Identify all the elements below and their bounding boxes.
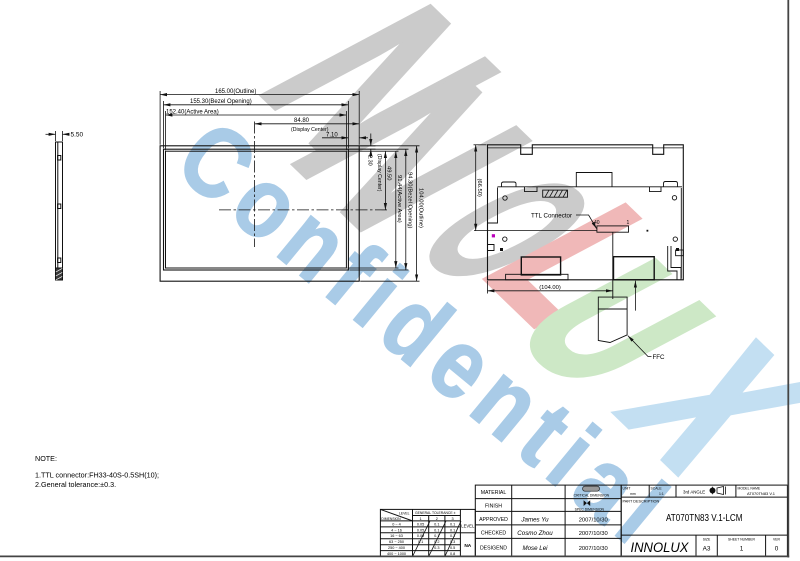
svg-text:165.00(Outline): 165.00(Outline) bbox=[215, 89, 256, 95]
svg-text:0.1: 0.1 bbox=[434, 534, 439, 538]
svg-text:0.05: 0.05 bbox=[417, 522, 424, 526]
svg-text:0.1: 0.1 bbox=[434, 528, 439, 532]
svg-text:TTL Connector: TTL Connector bbox=[531, 213, 572, 220]
svg-text:INNOLUX: INNOLUX bbox=[631, 540, 690, 555]
svg-text:LEVEL: LEVEL bbox=[461, 524, 475, 529]
svg-text:250 ~ 400: 250 ~ 400 bbox=[388, 546, 405, 550]
svg-text:PART DESCRIPTION: PART DESCRIPTION bbox=[623, 500, 660, 504]
svg-text:400 ~ 1000: 400 ~ 1000 bbox=[387, 552, 406, 556]
svg-text:(66.50): (66.50) bbox=[476, 179, 482, 197]
svg-text:NA: NA bbox=[464, 543, 471, 549]
svg-text:GENERAL TOLERANCE ±: GENERAL TOLERANCE ± bbox=[415, 511, 456, 515]
svg-text:A3: A3 bbox=[703, 545, 711, 552]
svg-text:0: 0 bbox=[775, 545, 779, 552]
svg-text:FINISH: FINISH bbox=[485, 504, 502, 510]
svg-text:NOTE:: NOTE: bbox=[35, 454, 57, 463]
svg-text:1:1: 1:1 bbox=[659, 492, 664, 496]
svg-text:0.1: 0.1 bbox=[418, 540, 423, 544]
svg-text:VER: VER bbox=[773, 537, 781, 541]
svg-text:49.50: 49.50 bbox=[386, 166, 392, 181]
svg-text:AT070TN83 V.1-LCM: AT070TN83 V.1-LCM bbox=[666, 512, 743, 524]
svg-text:(Display Center): (Display Center) bbox=[291, 127, 329, 133]
svg-text:SIZE: SIZE bbox=[703, 537, 711, 541]
svg-text:0.1: 0.1 bbox=[450, 534, 455, 538]
svg-text:(Display Center): (Display Center) bbox=[376, 154, 382, 192]
svg-text:0.1: 0.1 bbox=[434, 522, 439, 526]
svg-text:James Yu: James Yu bbox=[520, 517, 549, 524]
svg-text:2007/10/30: 2007/10/30 bbox=[579, 546, 608, 552]
svg-text:1: 1 bbox=[740, 545, 744, 552]
svg-text:91.44(Active Area): 91.44(Active Area) bbox=[396, 175, 402, 223]
svg-text:(104.00): (104.00) bbox=[539, 285, 561, 291]
svg-text:SPEC DIMENSION: SPEC DIMENSION bbox=[575, 507, 605, 511]
svg-text:0.05: 0.05 bbox=[417, 528, 424, 532]
svg-text:2.General tolerance:±0.3.: 2.General tolerance:±0.3. bbox=[35, 480, 116, 489]
svg-text:CHECKED: CHECKED bbox=[481, 530, 507, 536]
svg-text:84.80: 84.80 bbox=[294, 118, 310, 124]
svg-text:16 ~ 63: 16 ~ 63 bbox=[390, 534, 403, 538]
svg-text:152.40(Active Area): 152.40(Active Area) bbox=[166, 109, 219, 115]
svg-text:4 ~ 16: 4 ~ 16 bbox=[391, 528, 402, 532]
svg-text:APPROVED: APPROVED bbox=[479, 517, 508, 523]
svg-text:AT070TN83 V.1: AT070TN83 V.1 bbox=[747, 491, 776, 496]
svg-text:DIMENSION: DIMENSION bbox=[381, 517, 401, 521]
svg-text:UNIT: UNIT bbox=[623, 486, 631, 490]
svg-text:MATERIAL: MATERIAL bbox=[481, 490, 507, 496]
svg-text:CRITICAL DIMENSION: CRITICAL DIMENSION bbox=[574, 494, 610, 498]
svg-text:DESIGEND: DESIGEND bbox=[480, 546, 507, 552]
svg-text:Cosmo Zhou: Cosmo Zhou bbox=[517, 530, 553, 537]
svg-text:0.1: 0.1 bbox=[450, 528, 455, 532]
svg-text:mm: mm bbox=[630, 492, 636, 496]
svg-text:3: 3 bbox=[452, 517, 454, 521]
svg-text:0.5: 0.5 bbox=[450, 546, 455, 550]
svg-text:0.8: 0.8 bbox=[450, 552, 455, 556]
svg-text:3rd ANGLE: 3rd ANGLE bbox=[683, 490, 705, 495]
svg-text:0.2: 0.2 bbox=[434, 540, 439, 544]
svg-text:MODEL NAME: MODEL NAME bbox=[738, 486, 761, 490]
svg-text:0 ~ 4: 0 ~ 4 bbox=[392, 522, 401, 526]
svg-text:94.30(Bezel Opening): 94.30(Bezel Opening) bbox=[407, 172, 413, 228]
svg-text:2.30: 2.30 bbox=[366, 155, 372, 166]
svg-text:0.3: 0.3 bbox=[450, 540, 455, 544]
svg-text:0.3: 0.3 bbox=[434, 546, 439, 550]
svg-text:1.TTL connector:FH33-40S-0.5SH: 1.TTL connector:FH33-40S-0.5SH(10); bbox=[35, 471, 159, 480]
svg-text:Mose Lei: Mose Lei bbox=[522, 545, 548, 552]
svg-text:0.09: 0.09 bbox=[417, 534, 424, 538]
svg-text:1: 1 bbox=[627, 220, 630, 226]
svg-text:2007/10/30: 2007/10/30 bbox=[579, 517, 608, 523]
svg-text:5.50: 5.50 bbox=[71, 132, 84, 139]
svg-text:0.1: 0.1 bbox=[450, 522, 455, 526]
svg-text:7.10: 7.10 bbox=[326, 132, 338, 138]
svg-text:LEVEL: LEVEL bbox=[399, 511, 410, 515]
svg-text:2: 2 bbox=[436, 517, 438, 521]
svg-text:2007/10/30: 2007/10/30 bbox=[579, 531, 608, 537]
svg-text:1: 1 bbox=[420, 517, 422, 521]
svg-text:63 ~ 250: 63 ~ 250 bbox=[389, 540, 404, 544]
svg-text:SCALE: SCALE bbox=[651, 486, 663, 490]
svg-text:SHEET NUMBER: SHEET NUMBER bbox=[728, 537, 755, 541]
svg-text:155.30(Bezel Opening): 155.30(Bezel Opening) bbox=[190, 99, 252, 105]
svg-text:FFC: FFC bbox=[653, 354, 666, 361]
svg-text:104.00(Outline): 104.00(Outline) bbox=[417, 188, 423, 228]
